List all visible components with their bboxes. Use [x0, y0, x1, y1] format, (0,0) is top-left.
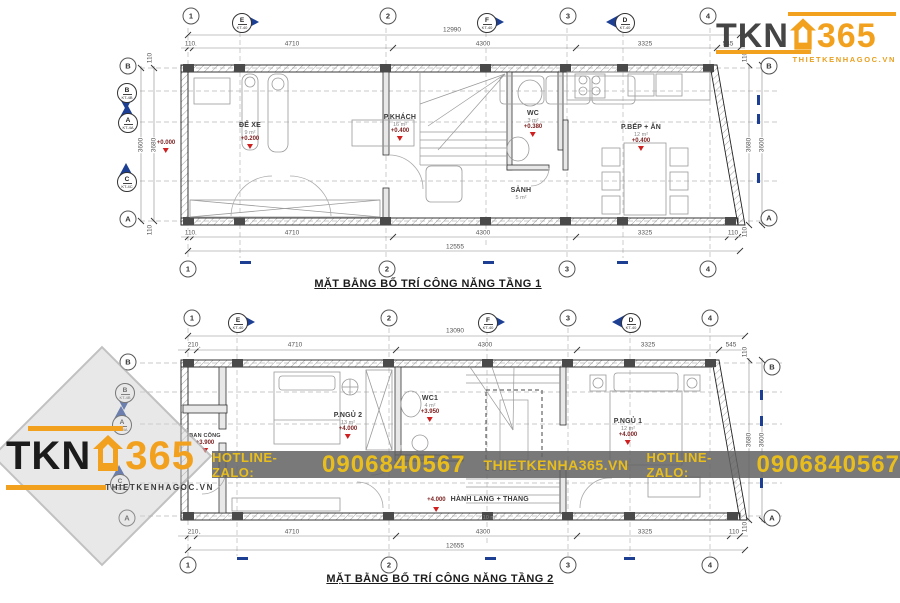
dim: 4300 [475, 529, 491, 536]
axis-mark [237, 557, 248, 560]
dim: 110 [184, 230, 196, 237]
axis-mark [760, 390, 763, 400]
dim: 4710 [284, 529, 300, 536]
logo-tagline: THIETKENHAGOC.VN [792, 55, 896, 64]
axis-mark [624, 557, 635, 560]
logo-accent-bar [28, 426, 123, 431]
grid-bubble: B [120, 354, 137, 371]
plan1-stairs [420, 72, 507, 165]
level-marker-icon [433, 507, 439, 512]
level-marker-icon [638, 146, 644, 151]
dim: 110 [727, 230, 739, 237]
grid-bubble: 3 [560, 8, 577, 25]
level-entry: +0.000 [157, 140, 176, 153]
room-wc1: WC14 m² +3.950 [421, 395, 440, 422]
website-text: THIETKENHA365.VN [484, 457, 629, 473]
axis-mark [617, 261, 628, 264]
dim: 3600 [759, 432, 766, 448]
axis-mark [240, 261, 251, 264]
dim: 3680 [746, 137, 753, 153]
grid-bubble: A [120, 211, 137, 228]
dim-overall: 12655 [445, 543, 465, 550]
grid-bubble: 2 [380, 8, 397, 25]
level-marker-icon [427, 417, 433, 422]
logo-house-icon [790, 18, 816, 50]
logo-accent-bar [716, 50, 811, 54]
dim: 110 [147, 52, 154, 64]
plan1-title: MẶT BẰNG BỐ TRÍ CÔNG NĂNG TẦNG 1 [314, 278, 541, 290]
dim: 110 [742, 346, 749, 358]
hotline-phone: 0906840567 [322, 453, 465, 477]
room-dexe: ĐỂ XE9 m² +0.200 [239, 122, 261, 149]
grid-bubble: 2 [379, 261, 396, 278]
grid-bubble: B [764, 359, 781, 376]
dim: 110 [147, 224, 154, 236]
level-marker-icon [625, 440, 631, 445]
logo-tagline: THIETKENHAGOC.VN [105, 483, 214, 492]
logo-house-icon [93, 434, 123, 472]
room-ngu2: P.NGỦ 213 m² +4.000 [334, 412, 363, 439]
level-marker-icon [345, 434, 351, 439]
logo-tkn-text: TKN [716, 23, 789, 50]
plan2-title: MẶT BẰNG BỐ TRÍ CÔNG NĂNG TẦNG 2 [326, 573, 553, 585]
dim-overall: 12555 [445, 244, 465, 251]
axis-mark [760, 478, 763, 488]
axis-mark [757, 95, 760, 105]
room-sanh: SẢNH5 m² [511, 187, 532, 201]
dim: 210 [187, 342, 200, 349]
dim: 110 [742, 226, 749, 238]
level-marker-icon [163, 148, 169, 153]
room-ngu1: P.NGỦ 112 m² +4.000 [614, 418, 643, 445]
dim: 3325 [637, 41, 653, 48]
logo-accent-bar [6, 485, 106, 490]
plan1-doors [231, 155, 549, 216]
level-marker-icon [247, 144, 253, 149]
logo-tkn-text: TKN [6, 440, 91, 472]
hotline-label: HOTLINE-ZALO: [212, 450, 304, 480]
dim: 4300 [477, 342, 493, 349]
dim-overall: 12990 [442, 27, 462, 34]
grid-bubble: 3 [559, 261, 576, 278]
dim: 110 [184, 41, 196, 48]
axis-mark [757, 114, 760, 124]
grid-bubble: 4 [702, 310, 719, 327]
grid-bubble: 1 [180, 261, 197, 278]
logo-365-text: 365 [125, 440, 195, 472]
dim: 3325 [637, 529, 653, 536]
grid-bubble: 1 [184, 310, 201, 327]
dim: 545 [725, 342, 738, 349]
room-wc: WC3 m² +0.380 [524, 110, 543, 137]
grid-bubble: A [764, 510, 781, 527]
dim: 4710 [284, 230, 300, 237]
grid-bubble: 3 [560, 557, 577, 574]
dim: 4300 [475, 41, 491, 48]
grid-bubble: 4 [702, 557, 719, 574]
logo-365-text: 365 [817, 23, 877, 50]
dim-overall: 13090 [445, 328, 465, 335]
grid-bubble: 2 [381, 557, 398, 574]
grid-bubble: A [761, 210, 778, 227]
grid-bubble: A [119, 510, 136, 527]
grid-bubble: 4 [700, 261, 717, 278]
room-khach: P.KHÁCH16 m² +0.400 [384, 114, 416, 141]
grid-bubble: B [120, 58, 137, 75]
room-hanhlang: +4.000 HÀNH LANG + THANG 10 m² [427, 488, 529, 524]
dim: 210 [187, 529, 200, 536]
axis-mark [760, 416, 763, 426]
dim: 3325 [640, 342, 656, 349]
logo-bottom-left: TKN 365 THIETKENHAGOC.VN [6, 424, 214, 498]
grid-bubble: 1 [183, 8, 200, 25]
level-marker-icon [530, 132, 536, 137]
level-marker-icon [397, 136, 403, 141]
dim: 110 [728, 529, 740, 536]
axis-mark [757, 173, 760, 183]
dim: 110 [742, 521, 749, 533]
dim: 4300 [475, 230, 491, 237]
logo-top-right: TKN 365 THIETKENHAGOC.VN [716, 8, 896, 64]
dim: 3325 [637, 230, 653, 237]
grid-bubble: 1 [180, 557, 197, 574]
dim: 4710 [284, 41, 300, 48]
logo-accent-bar [788, 12, 896, 16]
hotline-phone: 0906840567 [757, 453, 900, 477]
dim: 3600 [759, 137, 766, 153]
floorplan-sheet: 1 2 3 4 EKT-40 FKT-40 DKT-40 1 2 3 4 B B… [0, 0, 900, 603]
room-bep: P.BẾP + ĂN12 m² +0.400 [621, 124, 661, 151]
hotline-label: HOTLINE-ZALO: [646, 450, 738, 480]
axis-mark [485, 557, 496, 560]
dim: 4710 [287, 342, 303, 349]
grid-bubble: 4 [700, 8, 717, 25]
grid-bubble: 3 [560, 310, 577, 327]
dim: 3600 [138, 137, 145, 153]
hotline-banner: HOTLINE-ZALO: 0906840567 THIETKENHA365.V… [212, 451, 900, 478]
dim: 3680 [746, 432, 753, 448]
plan2-stairs [466, 367, 560, 503]
grid-bubble: 2 [381, 310, 398, 327]
axis-mark [483, 261, 494, 264]
